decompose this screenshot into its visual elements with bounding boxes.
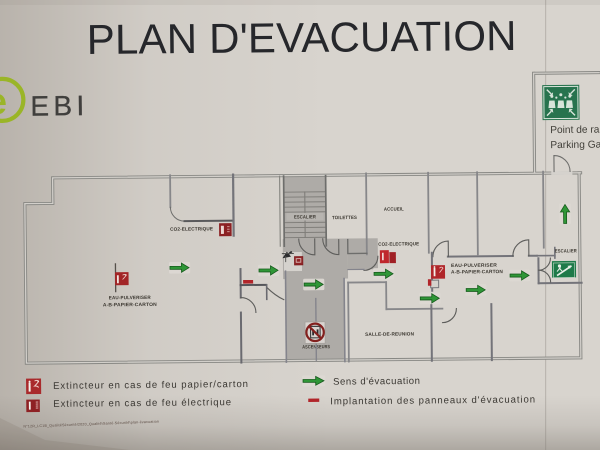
svg-text:Extincteur en cas de feu papie: Extincteur en cas de feu papier/carton — [53, 379, 249, 392]
svg-text:A-B-PAPIER-CARTON: A-B-PAPIER-CARTON — [451, 269, 503, 276]
svg-text:EAU-PULVERISER: EAU-PULVERISER — [451, 263, 497, 269]
svg-text:A-B-PAPIER-CARTON: A-B-PAPIER-CARTON — [103, 302, 157, 309]
svg-text:Parking Gare SNCF: Parking Gare SNCF — [550, 139, 600, 151]
svg-text:TOILETTES: TOILETTES — [332, 215, 358, 221]
svg-text:Point de rassemblement: Point de rassemblement — [550, 124, 600, 136]
svg-text:e: e — [0, 81, 7, 122]
svg-text:SALLE-DE-REUNION: SALLE-DE-REUNION — [365, 331, 414, 337]
svg-text:ESCALIER: ESCALIER — [555, 248, 577, 254]
svg-text:Sens d'évacuation: Sens d'évacuation — [333, 376, 421, 388]
svg-text:Implantation des panneaux d'év: Implantation des panneaux d'évacuation — [330, 394, 536, 407]
svg-text:CO2-ELECTRIQUE: CO2-ELECTRIQUE — [170, 226, 214, 232]
svg-text:Extincteur en cas de feu élect: Extincteur en cas de feu électrique — [53, 397, 232, 410]
svg-text:ACCUEIL: ACCUEIL — [384, 206, 404, 212]
svg-text:PLAN D'EVACUATION: PLAN D'EVACUATION — [87, 12, 517, 63]
svg-text:ESCALIER: ESCALIER — [294, 214, 316, 220]
svg-text:CO2-ELECTRIQUE: CO2-ELECTRIQUE — [378, 241, 420, 247]
svg-text:EAU-PULVERISER: EAU-PULVERISER — [109, 295, 151, 301]
svg-text:EBI: EBI — [30, 90, 88, 122]
